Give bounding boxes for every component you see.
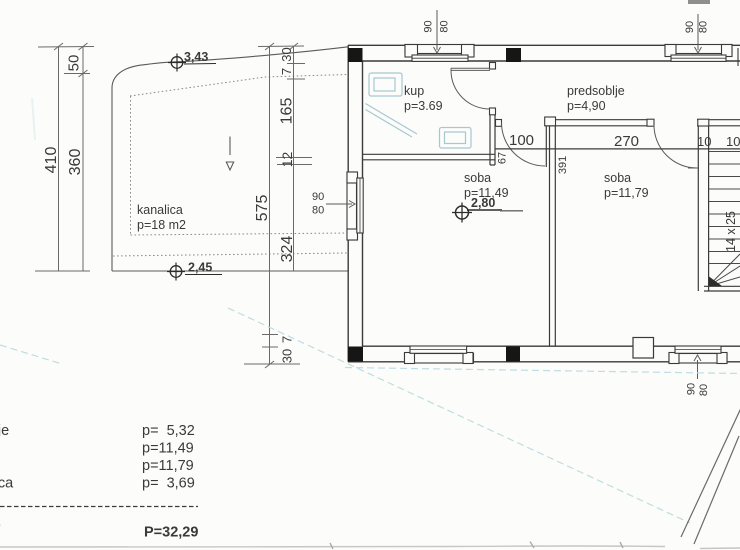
svg-text:p=3.69: p=3.69	[404, 99, 443, 113]
svg-text:165: 165	[279, 98, 296, 125]
svg-text:90: 90	[684, 21, 696, 33]
svg-text:80: 80	[698, 21, 710, 33]
svg-text:kup: kup	[404, 84, 424, 98]
svg-text:anica: anica	[0, 476, 14, 492]
svg-text:80: 80	[698, 384, 710, 396]
svg-text:7: 7	[279, 68, 294, 75]
svg-text:P=32,29: P=32,29	[144, 525, 198, 541]
svg-text:p=11,79: p=11,79	[142, 458, 194, 474]
svg-text:3,43: 3,43	[184, 50, 208, 64]
svg-text:90: 90	[423, 20, 435, 32]
svg-text:30: 30	[279, 47, 294, 61]
svg-text:270: 270	[614, 133, 639, 150]
svg-text:p=11,79: p=11,79	[604, 186, 649, 200]
svg-text:100: 100	[509, 132, 534, 149]
svg-text:90: 90	[686, 383, 698, 395]
svg-text:575: 575	[254, 195, 271, 222]
svg-text:predsoblje: predsoblje	[567, 84, 625, 98]
svg-text:10: 10	[726, 134, 740, 149]
svg-text:7: 7	[280, 336, 295, 343]
svg-text:10: 10	[697, 134, 711, 149]
svg-text:2,45: 2,45	[188, 261, 212, 275]
svg-text:14 x 25: 14 x 25	[724, 211, 738, 252]
svg-text:p=4,90: p=4,90	[567, 99, 606, 113]
svg-text:12: 12	[279, 152, 295, 168]
svg-text:oblje: oblje	[0, 423, 9, 439]
svg-text:p=11,49: p=11,49	[142, 441, 194, 457]
svg-text:p=11,49: p=11,49	[464, 186, 509, 200]
svg-text:50: 50	[66, 55, 83, 72]
svg-text:soba: soba	[464, 171, 491, 185]
svg-text:kanalica: kanalica	[137, 203, 183, 217]
svg-text:324: 324	[279, 236, 296, 263]
svg-text:360: 360	[67, 149, 84, 176]
svg-text:410: 410	[43, 147, 60, 174]
svg-text:67: 67	[497, 152, 509, 164]
svg-text:80: 80	[312, 205, 324, 217]
svg-text:80: 80	[439, 20, 451, 32]
svg-text:p= 5,32: p= 5,32	[142, 423, 195, 439]
svg-text:90: 90	[312, 191, 324, 203]
svg-text:30: 30	[280, 349, 295, 363]
svg-text:p= 3,69: p= 3,69	[142, 476, 195, 492]
svg-text:391: 391	[557, 156, 569, 174]
svg-text:p=18 m2: p=18 m2	[137, 218, 186, 232]
svg-text:soba: soba	[604, 171, 631, 185]
